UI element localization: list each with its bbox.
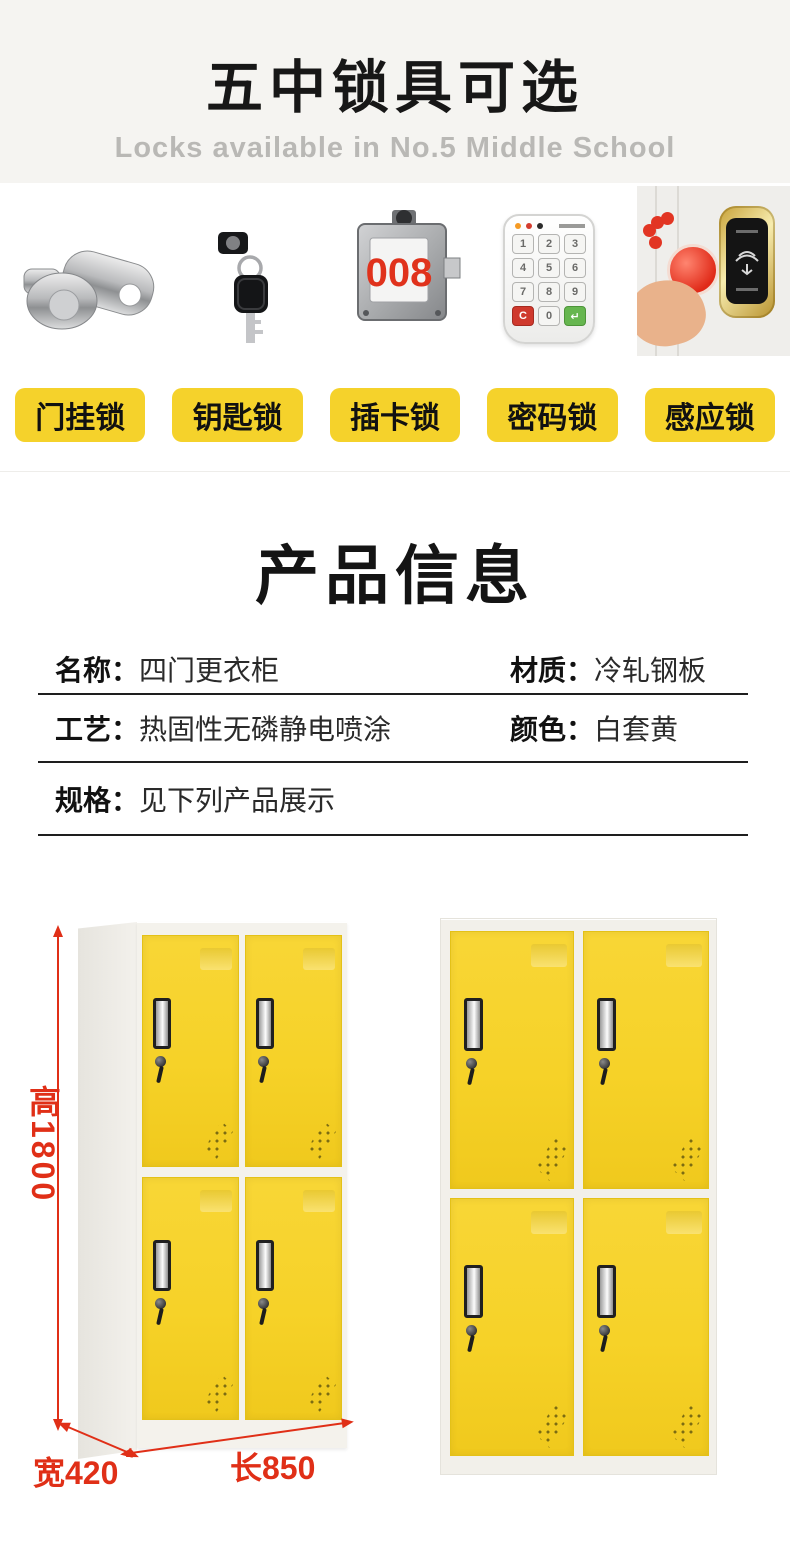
spec-cell: 规格： 见下列产品展示 [38, 779, 510, 819]
keypad-key: 8 [538, 282, 560, 302]
door-handle [464, 998, 483, 1051]
spec-value-process: 热固性无磷静电喷涂 [139, 708, 391, 748]
keypad-keys: 1 2 3 4 5 6 7 8 9 C 0 ↵ [512, 234, 586, 326]
length-dimension-label: 长850 [230, 1443, 315, 1489]
vent-holes [308, 1374, 336, 1412]
keypad-key: 9 [564, 282, 586, 302]
card-lock-icon: 008 [344, 210, 462, 332]
keypad-key: 5 [538, 258, 560, 278]
width-dimension-label: 宽420 [33, 1448, 118, 1494]
door-handle [464, 1265, 483, 1318]
lock-tag-key: 钥匙锁 [172, 388, 302, 442]
vent-holes [205, 1121, 233, 1159]
key-icon [208, 228, 288, 348]
key-in-lock [259, 1308, 267, 1325]
product-info-title: 产品信息 [0, 525, 790, 617]
card-lock-number: 008 [366, 251, 433, 295]
name-card-slot [200, 948, 232, 970]
name-card-slot [666, 944, 702, 967]
spec-value-color: 白套黄 [594, 708, 678, 748]
locker-door [142, 935, 239, 1167]
spec-row: 名称： 四门更衣柜 材质： 冷轧钢板 [38, 645, 748, 695]
spec-label-size: 规格： [55, 779, 139, 819]
key-in-lock [156, 1066, 164, 1083]
key-in-lock [600, 1068, 608, 1085]
locker-door [245, 935, 342, 1167]
section-divider [0, 471, 790, 472]
name-card-slot [531, 1211, 567, 1234]
wristband-bead [649, 236, 662, 249]
keypad-enter-key: ↵ [564, 306, 586, 326]
keypad-key: 3 [564, 234, 586, 254]
locker-door [450, 931, 574, 1189]
key-in-lock [467, 1068, 475, 1085]
spec-table: 名称： 四门更衣柜 材质： 冷轧钢板 工艺： 热固性无磷静电喷涂 颜色： 白套黄… [38, 645, 748, 836]
key-in-lock [259, 1066, 267, 1083]
locker-door [245, 1177, 342, 1420]
door-handle [256, 1240, 274, 1291]
spec-value-size: 见下列产品展示 [139, 779, 335, 819]
locker-door [583, 1198, 709, 1456]
lock-tag-card: 插卡锁 [330, 388, 460, 442]
lock-tag-password: 密码锁 [487, 388, 617, 442]
spec-cell: 材质： 冷轧钢板 [510, 649, 706, 689]
hasp-lock-icon [18, 235, 158, 345]
vent-holes [308, 1121, 336, 1159]
locker-door [142, 1177, 239, 1420]
spec-label-process: 工艺： [55, 708, 139, 748]
vent-holes [536, 1404, 568, 1448]
lock-tag-induction: 感应锁 [645, 388, 775, 442]
door-handle [256, 998, 274, 1049]
spec-label-name: 名称： [55, 649, 139, 689]
locker-door [450, 1198, 574, 1456]
vent-holes [205, 1374, 233, 1412]
card-lock-photo: 008 [344, 210, 462, 332]
key-in-lock [156, 1308, 164, 1325]
keypad-key: 7 [512, 282, 534, 302]
keypad-key: 0 [538, 306, 560, 326]
door-handle [597, 998, 616, 1051]
keypad-key: 4 [512, 258, 534, 278]
locker-3d-front [137, 922, 347, 1448]
spec-value-name: 四门更衣柜 [139, 649, 279, 689]
vent-holes [671, 1404, 703, 1448]
keypad-leds [515, 223, 543, 229]
rfid-reader [719, 206, 775, 318]
product-detail-page: 五中锁具可选 Locks available in No.5 Middle Sc… [0, 0, 790, 1567]
spec-value-material: 冷轧钢板 [594, 649, 706, 689]
keypad-brand-mark [559, 224, 585, 228]
locker-front-view [440, 918, 717, 1475]
keypad-lock-photo: 1 2 3 4 5 6 7 8 9 C 0 ↵ [503, 214, 595, 344]
lock-tags-row: 门挂锁 钥匙锁 插卡锁 密码锁 感应锁 [0, 388, 790, 442]
rfid-reader-face [726, 218, 768, 304]
vent-holes [671, 1137, 703, 1181]
key-in-lock [600, 1335, 608, 1352]
header-band: 五中锁具可选 Locks available in No.5 Middle Sc… [0, 0, 790, 183]
keypad-clear-key: C [512, 306, 534, 326]
keypad-key: 2 [538, 234, 560, 254]
door-handle [153, 1240, 171, 1291]
key-lock-photo [208, 228, 288, 348]
key-in-lock [467, 1335, 475, 1352]
wireless-icon [726, 218, 768, 304]
height-dimension-label: 高1800 [20, 1085, 66, 1203]
spec-cell: 名称： 四门更衣柜 [38, 649, 510, 689]
rfid-lock-photo [637, 186, 790, 356]
lock-tag-hasp: 门挂锁 [15, 388, 145, 442]
keypad-key: 1 [512, 234, 534, 254]
locker-door [583, 931, 709, 1189]
spec-cell: 颜色： 白套黄 [510, 708, 678, 748]
spec-cell: 工艺： 热固性无磷静电喷涂 [38, 708, 510, 748]
page-subtitle: Locks available in No.5 Middle School [0, 132, 790, 165]
locker-3d-side-panel [78, 922, 137, 1459]
name-card-slot [303, 1190, 335, 1212]
name-card-slot [200, 1190, 232, 1212]
wristband-bead [661, 212, 674, 225]
keypad-key: 6 [564, 258, 586, 278]
vent-holes [536, 1137, 568, 1181]
spec-row: 规格： 见下列产品展示 [38, 763, 748, 836]
name-card-slot [303, 948, 335, 970]
hasp-lock-photo [18, 235, 158, 345]
page-title: 五中锁具可选 [0, 0, 790, 124]
spec-label-color: 颜色： [510, 708, 594, 748]
spec-row: 工艺： 热固性无磷静电喷涂 颜色： 白套黄 [38, 695, 748, 763]
door-handle [597, 1265, 616, 1318]
name-card-slot [531, 944, 567, 967]
door-handle [153, 998, 171, 1049]
spec-label-material: 材质： [510, 649, 594, 689]
name-card-slot [666, 1211, 702, 1234]
